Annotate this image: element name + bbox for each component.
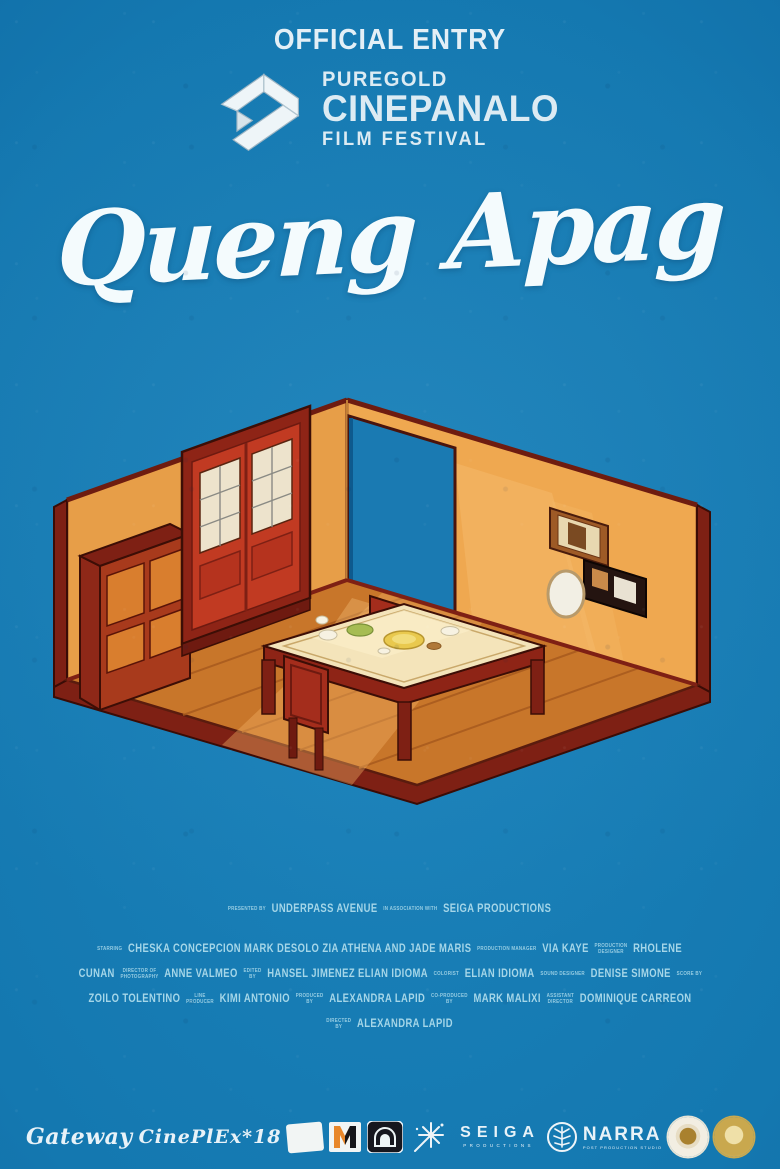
credit-role-label: SCORE BY: [677, 971, 703, 977]
gateway-logo-text: Gateway: [26, 1124, 133, 1150]
oval-mirror: [548, 571, 584, 617]
credit-name: DOMINIQUE CARREON: [580, 993, 692, 1005]
credit-name: ANNE VALMEO: [164, 968, 237, 980]
credit-name: RHOLENE: [633, 943, 682, 955]
festival-text: PUREGOLD CINEPANALO FILM FESTIVAL: [322, 69, 559, 151]
credits-block: PRESENTED BYUNDERPASS AVENUEIN ASSOCIATI…: [0, 903, 780, 1043]
credit-name: ELIAN IDIOMA: [465, 968, 535, 980]
sparkle-icon: [409, 1117, 449, 1157]
credit-name: HANSEL JIMENEZ ELIAN IDIOMA: [267, 968, 428, 980]
room-illustration: [52, 378, 722, 860]
festival-subtitle: FILM FESTIVAL: [322, 129, 559, 151]
m-studio-logo: [329, 1122, 361, 1152]
cineplex-logo-text: CinePlEx*18: [139, 1126, 282, 1148]
credit-line: DIRECTEDBYALEXANDRA LAPID: [70, 1018, 710, 1030]
narra-tree-icon: [546, 1121, 578, 1153]
credit-name: CHESKA CONCEPCION MARK DESOLO ZIA ATHENA…: [128, 943, 471, 955]
credit-name: DENISE SIMONE: [591, 968, 671, 980]
credit-role-label: DIRECTOR OFPHOTOGRAPHY: [121, 968, 159, 980]
official-entry-text: OFFICIAL ENTRY: [31, 24, 749, 57]
film-title: Queng Apag: [0, 159, 780, 313]
credit-line: ZOILO TOLENTINOLINEPRODUCERKIMI ANTONIOP…: [70, 993, 710, 1005]
film-festival-ticket-icon: [286, 1121, 324, 1153]
credit-name: SEIGA PRODUCTIONS: [443, 903, 551, 915]
impossible-ribbon-play-icon: [212, 60, 308, 160]
seiga-name: SEIGA: [454, 1125, 540, 1141]
m-letter-icon: [329, 1122, 361, 1152]
festival-name: CINEPANALO: [322, 90, 559, 129]
festival-logo: PUREGOLD CINEPANALO FILM FESTIVAL: [0, 60, 780, 160]
tunnel-arch-icon: [367, 1121, 403, 1153]
credit-name: ALEXANDRA LAPID: [329, 993, 425, 1005]
gateway-logo: Gateway: [26, 1124, 133, 1150]
film-poster: OFFICIAL ENTRY PUREGOLD CINEPANALO FILM …: [0, 0, 780, 1169]
cabinet: [80, 524, 190, 710]
cineplex-logo: CinePlEx*18: [139, 1126, 282, 1148]
credit-line: PRESENTED BYUNDERPASS AVENUEIN ASSOCIATI…: [70, 903, 710, 915]
narra-subtitle: POST PRODUCTION STUDIO: [583, 1146, 662, 1150]
credit-role-label: PRESENTED BY: [228, 906, 266, 912]
underpass-tunnel-logo: [367, 1121, 403, 1153]
seiga-productions-logo: SEIGA PRODUCTIONS: [409, 1117, 540, 1157]
credit-line: CUNANDIRECTOR OFPHOTOGRAPHYANNE VALMEOED…: [70, 968, 710, 980]
credit-role-label: SOUND DESIGNER: [540, 971, 585, 977]
credit-name: UNDERPASS AVENUE: [272, 903, 378, 915]
narra-logo: NARRA POST PRODUCTION STUDIO: [546, 1121, 662, 1153]
credit-name: KIMI ANTONIO: [220, 993, 290, 1005]
credit-role-label: DIRECTEDBY: [326, 1018, 351, 1030]
credit-role-label: PRODUCTIONDESIGNER: [595, 943, 628, 955]
credit-role-label: PRODUCTION MANAGER: [477, 946, 536, 952]
credit-role-label: IN ASSOCIATION WITH: [383, 906, 437, 912]
seiga-subtitle: PRODUCTIONS: [460, 1144, 534, 1149]
credit-line: STARRINGCHESKA CONCEPCION MARK DESOLO ZI…: [70, 943, 710, 955]
narra-text-block: NARRA POST PRODUCTION STUDIO: [583, 1125, 662, 1150]
credit-name: MARK MALIXI: [473, 993, 540, 1005]
credit-role-label: ASSISTANTDIRECTOR: [547, 993, 574, 1005]
festival-brand: PUREGOLD: [322, 69, 559, 90]
credit-name: CUNAN: [79, 968, 115, 980]
credit-role-label: STARRING: [97, 946, 122, 952]
gold-seal-icon: [714, 1117, 754, 1157]
credit-role-label: CO-PRODUCEDBY: [431, 993, 468, 1005]
credit-role-label: COLORIST: [434, 971, 459, 977]
footer-logos-row: Gateway CinePlEx*18: [0, 1111, 780, 1163]
narra-name: NARRA: [583, 1125, 662, 1144]
credit-role-label: EDITEDBY: [243, 968, 261, 980]
city-seal-icon: [668, 1117, 708, 1157]
credit-role-label: LINEPRODUCER: [186, 993, 214, 1005]
seiga-text-block: SEIGA PRODUCTIONS: [454, 1125, 540, 1149]
credit-name: VIA KAYE: [542, 943, 589, 955]
credit-role-label: PRODUCEDBY: [296, 993, 324, 1005]
credit-name: ALEXANDRA LAPID: [357, 1018, 453, 1030]
credit-name: ZOILO TOLENTINO: [88, 993, 180, 1005]
